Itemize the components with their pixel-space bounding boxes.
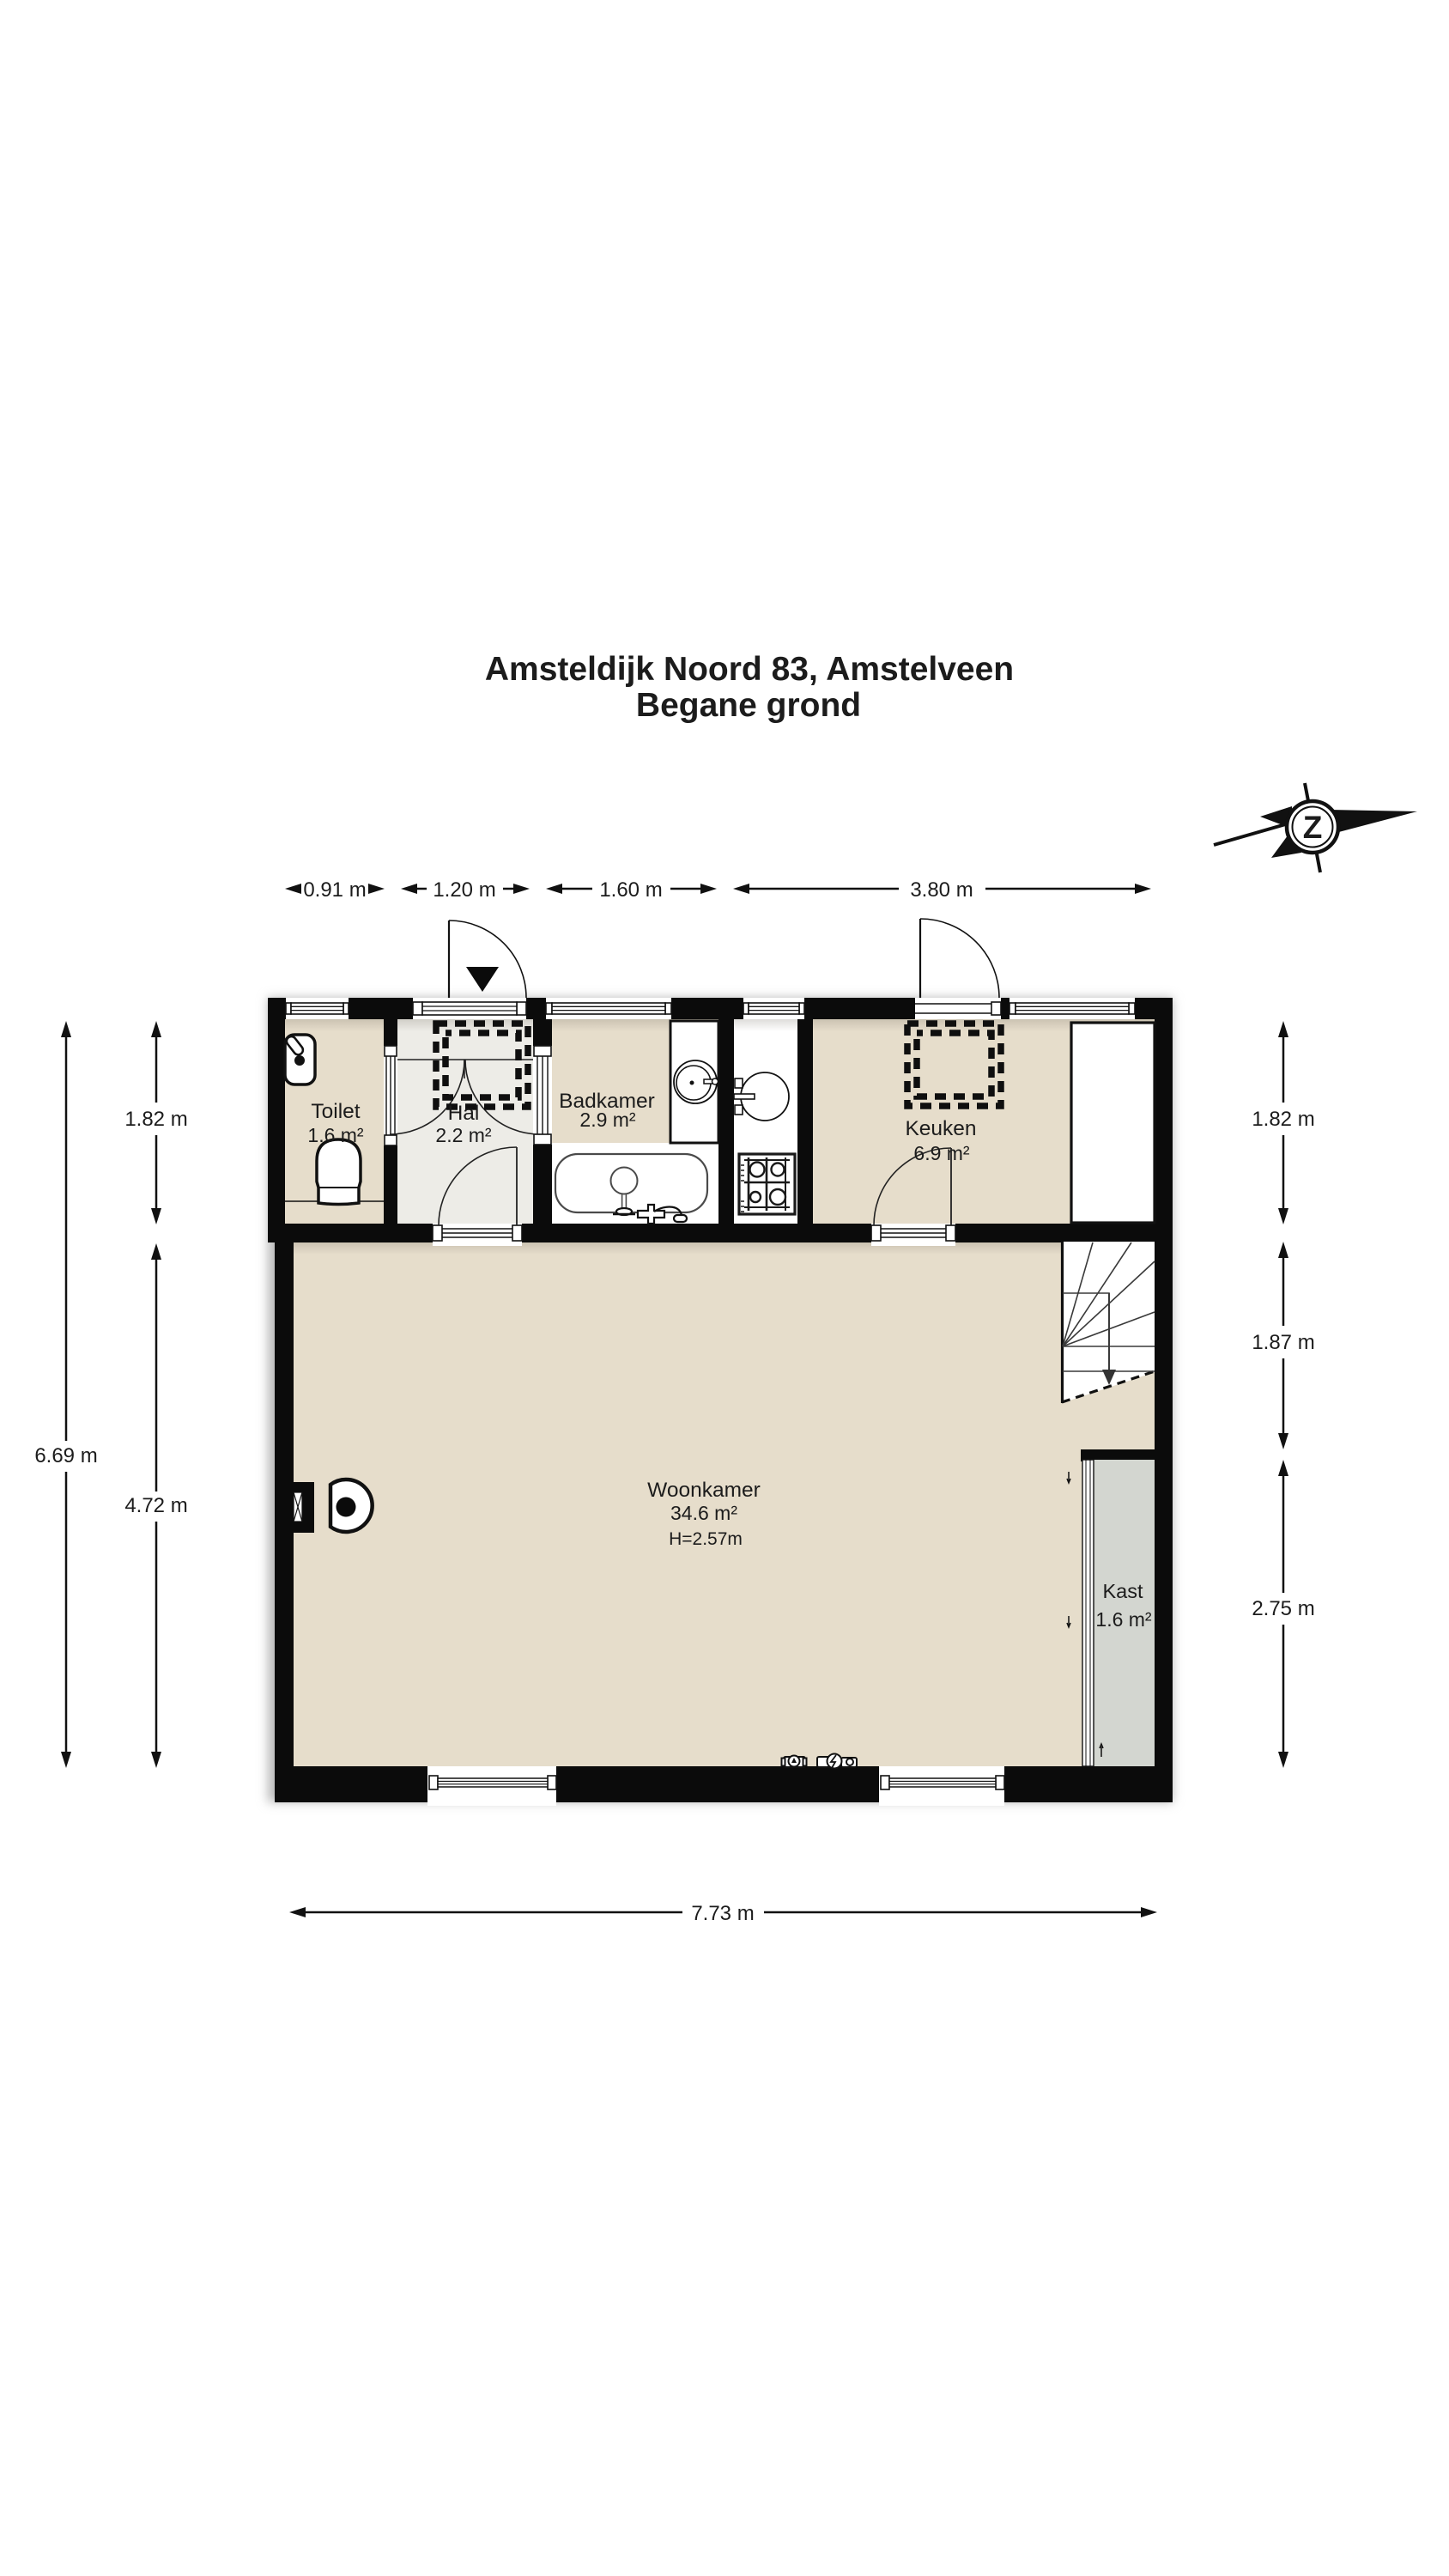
- svg-text:1.82 m: 1.82 m: [1252, 1108, 1314, 1131]
- svg-text:Hal: Hal: [448, 1102, 480, 1125]
- svg-text:6.9 m²: 6.9 m²: [913, 1142, 970, 1164]
- svg-text:34.6 m²: 34.6 m²: [670, 1502, 737, 1524]
- svg-text:Begane grond: Begane grond: [636, 687, 861, 724]
- svg-text:Toilet: Toilet: [311, 1100, 360, 1123]
- svg-text:1.60 m: 1.60 m: [599, 878, 662, 902]
- svg-text:1.6 m²: 1.6 m²: [1095, 1608, 1152, 1631]
- svg-text:7.73 m: 7.73 m: [691, 1902, 754, 1925]
- svg-text:Z: Z: [1303, 810, 1323, 845]
- svg-text:Amsteldijk Noord 83, Amstelvee: Amsteldijk Noord 83, Amstelveen: [485, 651, 1014, 688]
- svg-text:2.2 m²: 2.2 m²: [435, 1124, 492, 1146]
- svg-text:3.80 m: 3.80 m: [910, 878, 973, 902]
- svg-text:6.69 m: 6.69 m: [34, 1444, 97, 1467]
- svg-text:Keuken: Keuken: [905, 1117, 976, 1140]
- svg-text:1.6 m²: 1.6 m²: [307, 1124, 364, 1146]
- svg-text:1.87 m: 1.87 m: [1252, 1331, 1314, 1354]
- svg-text:2.9 m²: 2.9 m²: [579, 1109, 636, 1131]
- svg-text:0.91 m: 0.91 m: [303, 878, 366, 902]
- svg-text:1.20 m: 1.20 m: [433, 878, 495, 902]
- svg-text:1.82 m: 1.82 m: [124, 1108, 187, 1131]
- svg-text:H=2.57m: H=2.57m: [669, 1529, 743, 1549]
- svg-text:2.75 m: 2.75 m: [1252, 1597, 1314, 1620]
- svg-text:Woonkamer: Woonkamer: [647, 1479, 761, 1502]
- svg-text:4.72 m: 4.72 m: [124, 1494, 187, 1517]
- svg-text:Kast: Kast: [1102, 1580, 1143, 1602]
